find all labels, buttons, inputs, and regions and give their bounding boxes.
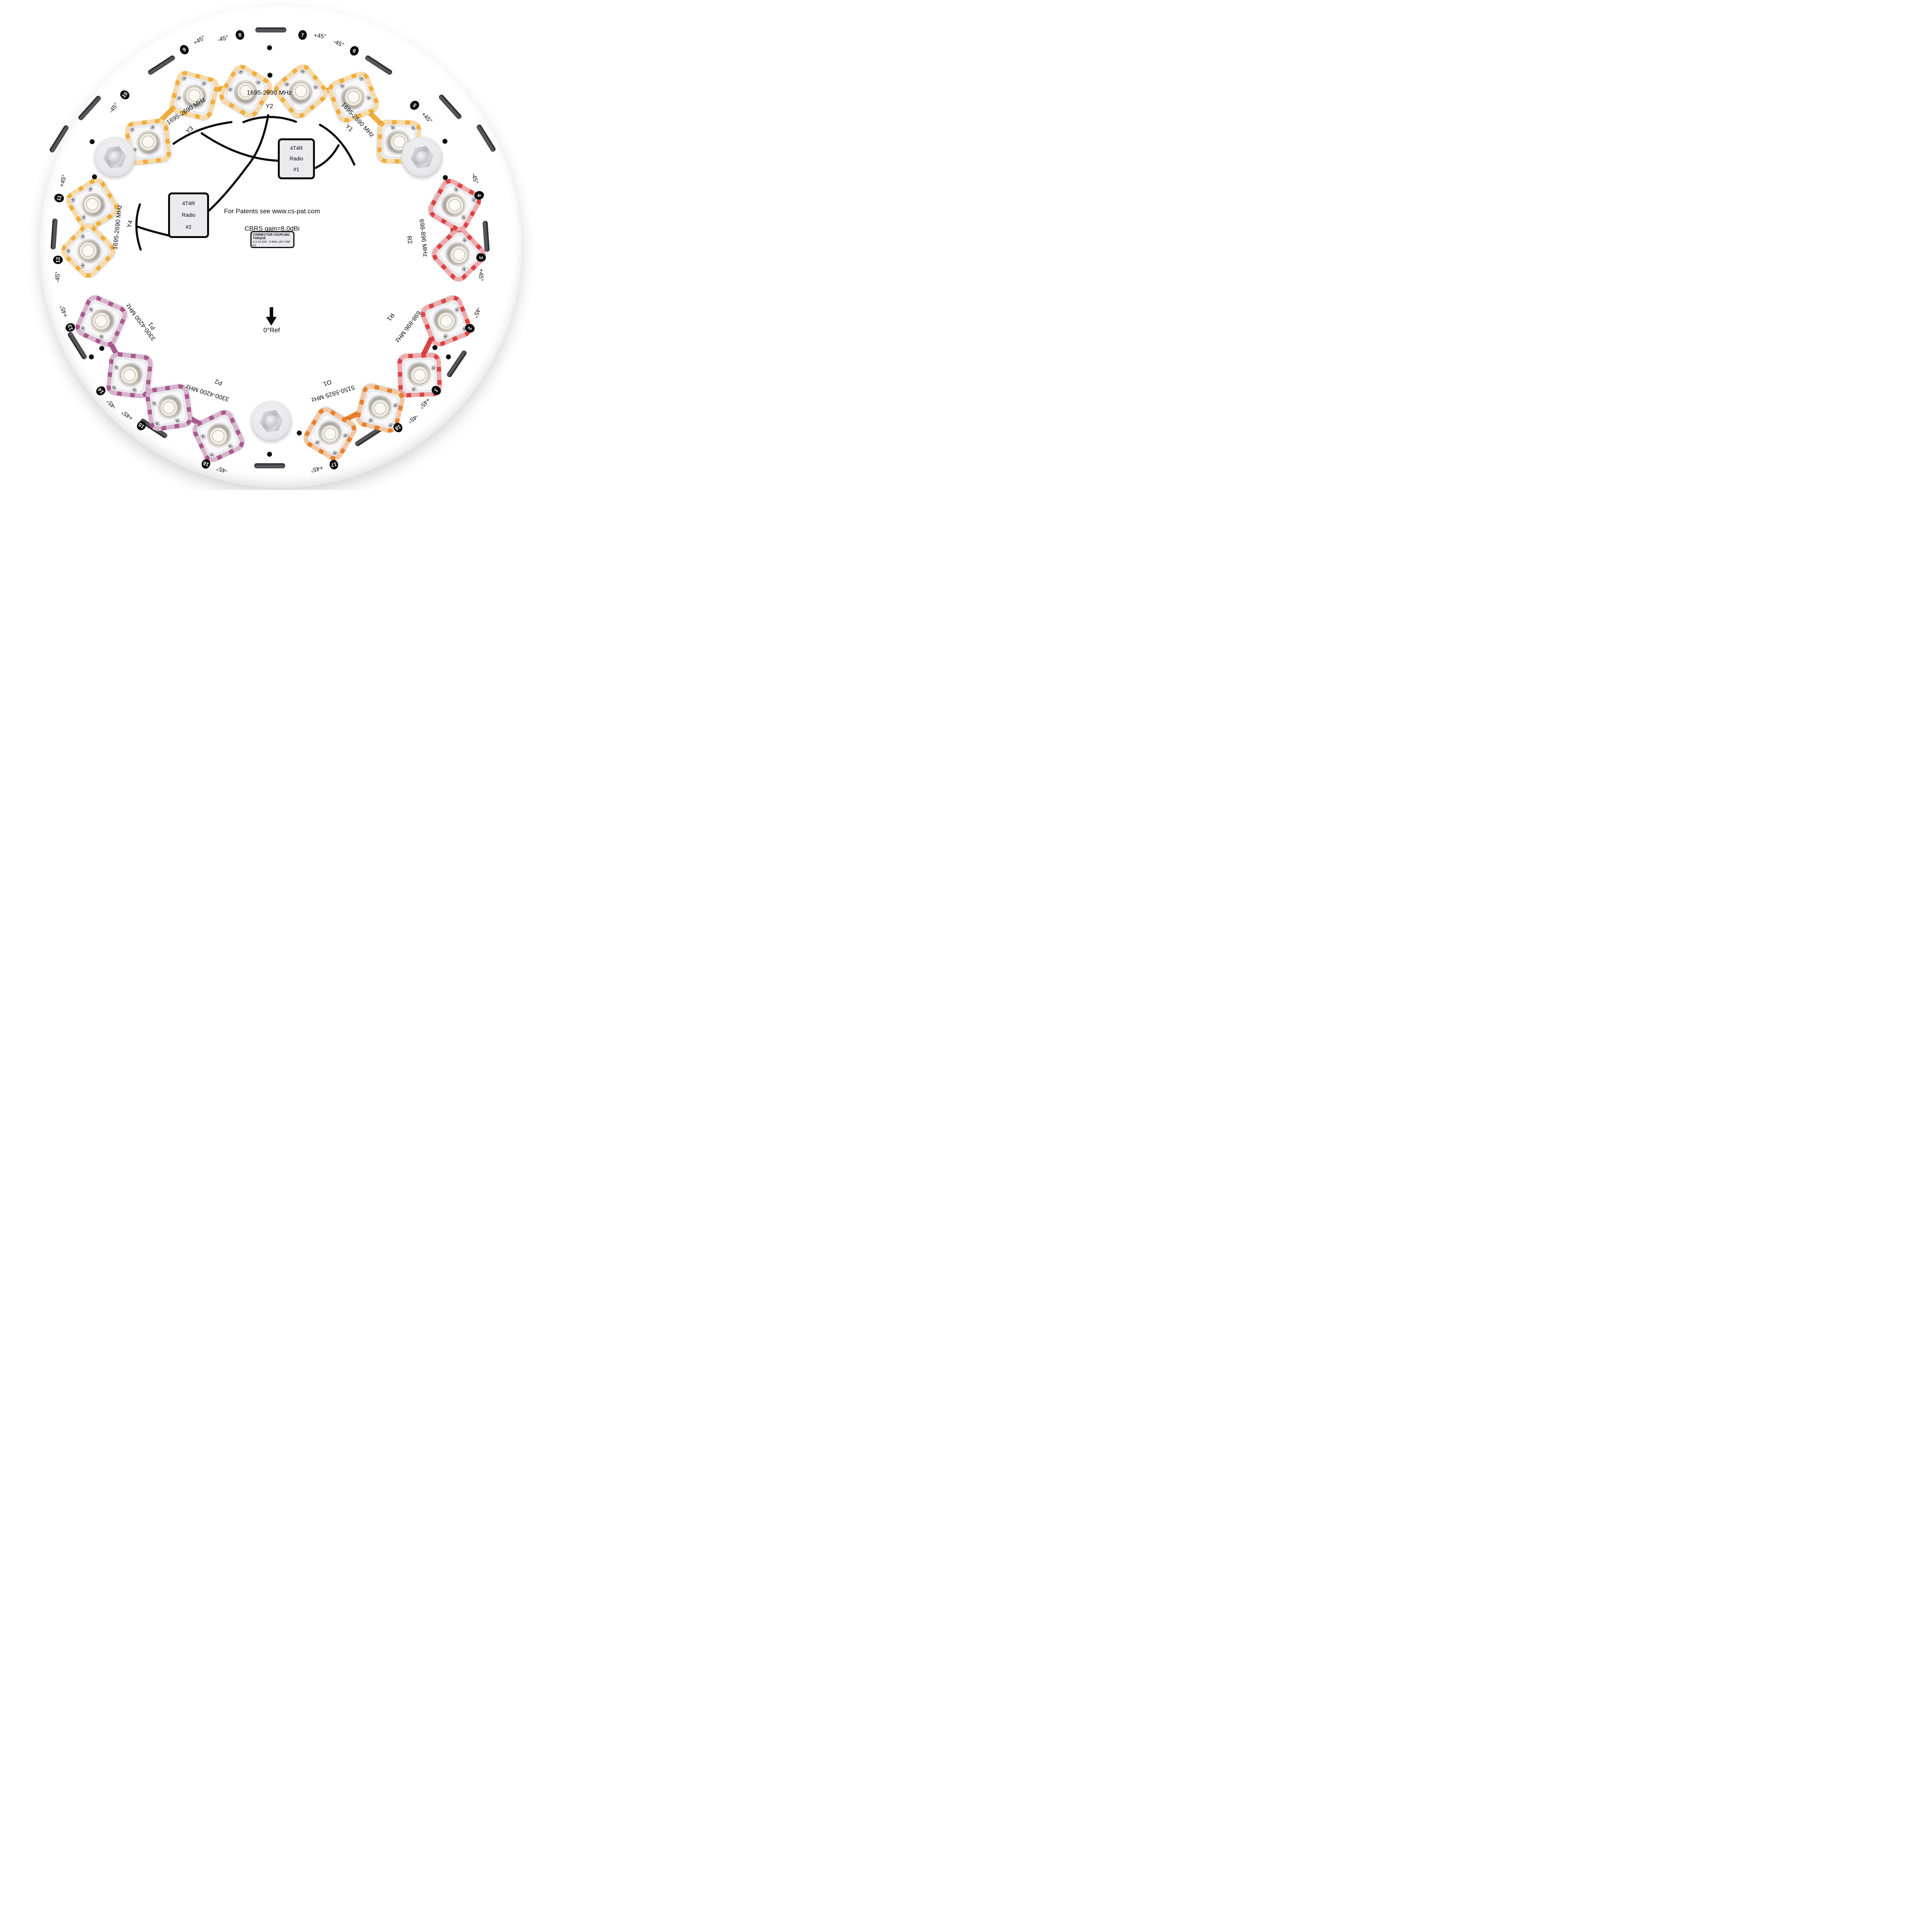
radio-box-1-line: #1 [293,167,299,172]
port-number-badge-11: 11 [53,192,65,203]
frequency-label: 1695-2690 MHz [112,204,124,250]
torque-spec-value: 4.3-10 DIN : 5-8Nm (45-71lbf in) [253,240,292,247]
zero-ref-arrow-shaft [270,307,273,317]
polarization-label-15: +45° [120,408,134,422]
port-number-badge-7: 7 [298,29,307,40]
polarization-label-9: +45° [192,34,206,47]
group-label-O1: O1 [322,378,332,387]
port-number-badge-12: 12 [53,255,63,264]
polarization-label-2: -45° [471,306,482,318]
label-layer: For Patents see www.cs-pat.com CBRS gain… [0,0,562,490]
radio-box-1-line: Radio [289,156,303,162]
group-label-R1: R1 [385,311,395,322]
polarization-label-17: +45° [310,464,324,473]
group-label-Y4: Y4 [126,220,134,229]
port-number-badge-18: 18 [392,421,404,434]
group-label-Y2: Y2 [265,103,273,111]
polarization-label-14: -45° [105,398,118,411]
radio-box-2-line: Radio [182,213,195,218]
port-number-badge-15: 15 [135,419,148,432]
frequency-label: 3300-4200 MHz [185,383,230,402]
radio-box-2-line: 4T4R [182,201,195,206]
frequency-label: 698-896 MHz [393,309,422,344]
group-label-P2: P2 [214,377,223,386]
frequency-label: 1695-2690 MHz [247,90,292,97]
radio-box-1-line: 4T4R [290,146,303,151]
frequency-label: 5150-5925 MHz [310,383,355,403]
polarization-label-3: +45° [477,269,485,281]
polarization-label-18: -45° [406,413,420,424]
polarization-label-6: -45° [332,38,345,49]
polarization-label-4: -45° [470,172,480,184]
polarization-label-5: +45° [420,111,433,125]
polarization-label-16: -45° [216,464,229,475]
port-number-badge-14: 14 [94,384,107,397]
port-number-badge-9: 9 [178,43,190,56]
port-number-badge-5: 5 [408,99,421,111]
patents-text: For Patents see www.cs-pat.com [224,207,320,215]
torque-spec-title: CONNECTOR COUPLING TORQUE [253,233,292,240]
group-label-R2: R2 [405,235,413,244]
group-label-Y1: Y1 [344,123,354,133]
radio-box-2-line: #2 [185,224,191,230]
frequency-label: 698-896 MHz [418,219,429,257]
port-number-badge-13: 13 [64,321,76,333]
port-number-badge-10: 10 [118,88,131,101]
radio-box-1: 4T4RRadio#1 [278,138,315,179]
frequency-label: 1695-2690 MHz [165,96,207,127]
antenna-bottom-plate-diagram: For Patents see www.cs-pat.com CBRS gain… [0,0,562,490]
polarization-label-13: +45° [59,304,70,318]
zero-ref-label: 0°Ref [264,327,280,334]
group-label-Y3: Y3 [185,125,195,135]
port-number-badge-8: 8 [235,29,245,41]
port-number-badge-3: 3 [476,253,486,262]
port-number-badge-2: 2 [464,322,476,334]
zero-ref-arrow-head [266,317,277,326]
port-number-badge-17: 17 [328,459,339,470]
polarization-label-12: -45° [54,272,61,283]
polarization-label-1: +45° [418,396,431,410]
polarization-label-11: +45° [58,174,68,188]
polarization-label-10: -45° [108,102,120,115]
polarization-label-8: -45° [217,34,229,44]
port-number-badge-1: 1 [430,384,442,396]
port-number-badge-4: 4 [473,190,485,201]
radio-box-2: 4T4RRadio#2 [168,192,209,238]
port-number-badge-16: 16 [200,458,211,470]
port-number-badge-6: 6 [349,44,360,57]
frequency-label: 1695-2690 MHz [340,101,376,139]
polarization-label-7: +45° [313,32,327,41]
torque-spec-box: CONNECTOR COUPLING TORQUE 4.3-10 DIN : 5… [250,231,294,248]
